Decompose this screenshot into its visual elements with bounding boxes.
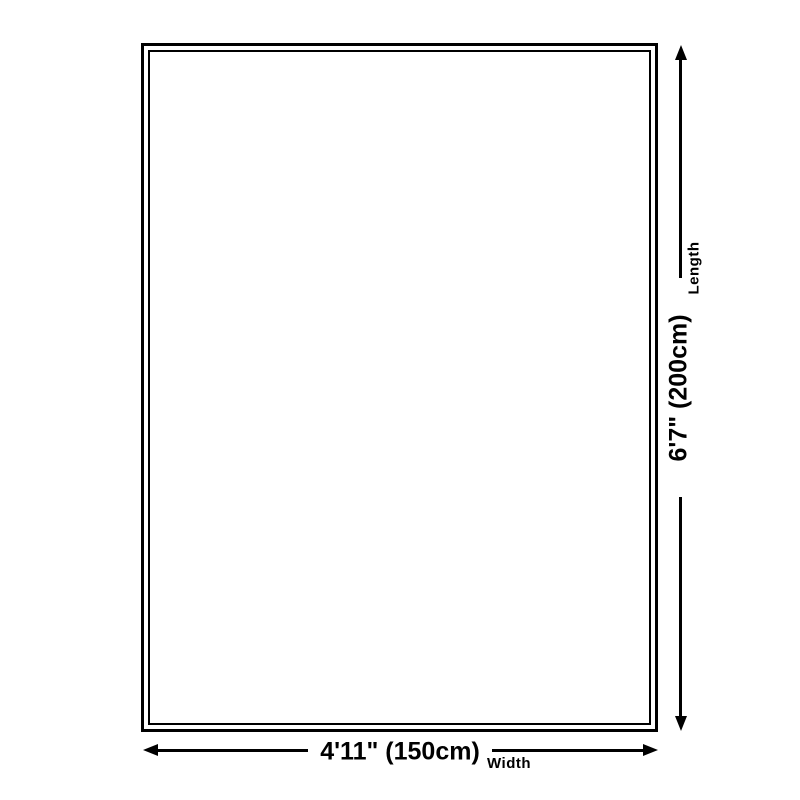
size-diagram: Length 6'7" (200cm) 4'11" (150cm) Width — [0, 0, 800, 800]
length-value: 6'7" (200cm) — [667, 314, 692, 461]
length-label: Length — [687, 242, 702, 295]
product-outline-inner — [148, 50, 651, 725]
width-label: Width — [487, 756, 531, 771]
length-dimension-line-top — [679, 59, 682, 278]
width-dimension-line-right — [492, 749, 643, 752]
arrow-left-icon — [143, 744, 158, 756]
arrow-right-icon — [643, 744, 658, 756]
width-dimension-line-left — [158, 749, 308, 752]
arrow-up-icon — [675, 45, 687, 60]
length-dimension-line-bottom — [679, 497, 682, 717]
width-value: 4'11" (150cm) — [320, 740, 480, 765]
product-outline — [141, 43, 658, 732]
arrow-down-icon — [675, 716, 687, 731]
